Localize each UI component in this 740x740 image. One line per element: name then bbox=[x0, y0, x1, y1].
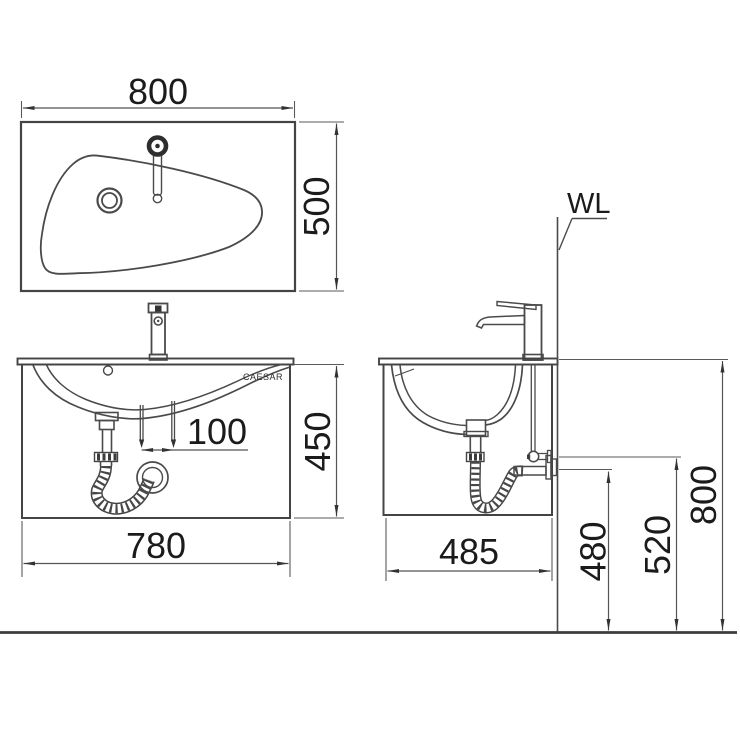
dim-side-depth-label: 485 bbox=[439, 531, 499, 572]
faucet-spout-side bbox=[477, 316, 525, 329]
front-view-outline bbox=[22, 365, 290, 519]
bowl-inner-right bbox=[486, 365, 516, 421]
dim-front-width-label: 780 bbox=[126, 525, 186, 566]
nut-band bbox=[114, 454, 117, 461]
supply-tube-side bbox=[531, 365, 535, 452]
technical-drawing-sheet: 800 500 CAESAR bbox=[0, 0, 740, 740]
washbasin-installation-diagram: 800 500 CAESAR bbox=[0, 0, 740, 740]
faucet-body-front bbox=[152, 313, 166, 355]
overflow-hole-icon bbox=[104, 366, 113, 375]
nut-band bbox=[97, 454, 100, 461]
pipe-tip-arrow bbox=[171, 440, 176, 449]
supply-pipe-left bbox=[140, 405, 143, 442]
valve-stem bbox=[527, 455, 530, 460]
drain-tailpiece-side bbox=[470, 437, 480, 453]
pipe-tip-arrow bbox=[139, 440, 144, 449]
wall-label-leader bbox=[559, 219, 572, 251]
faucet-body-side bbox=[525, 305, 542, 360]
dim-outlet-height-label: 480 bbox=[573, 521, 614, 581]
bowl-outer-right bbox=[486, 365, 523, 425]
nut-band bbox=[479, 454, 482, 461]
wall-line-label: WL bbox=[567, 188, 611, 220]
drain-nut-front bbox=[95, 453, 118, 462]
nut-band bbox=[469, 454, 472, 461]
drain-nut-side bbox=[467, 453, 485, 462]
nut-band bbox=[103, 454, 106, 461]
drain-hole-inner-icon bbox=[102, 193, 117, 208]
drain-tailpiece-front bbox=[103, 430, 112, 453]
flexible-hose-side bbox=[475, 462, 523, 508]
faucet-slot-icon bbox=[154, 152, 162, 195]
section-hatch-mark bbox=[395, 369, 414, 376]
valve-wall-plate bbox=[548, 451, 552, 463]
hose-coil-outer bbox=[137, 462, 168, 493]
side-view: WL 480 520 800 485 bbox=[379, 188, 728, 632]
dim-rim-height-label: 800 bbox=[683, 465, 724, 525]
faucet-hole-center-icon bbox=[155, 144, 160, 149]
drain-flange-step-front bbox=[100, 421, 115, 430]
dim-front-height-label: 450 bbox=[297, 411, 338, 471]
nut-band bbox=[108, 454, 111, 461]
dim-top-width-label: 800 bbox=[128, 71, 188, 112]
dim-valve-height-label: 520 bbox=[637, 515, 678, 575]
faucet-ring-dot bbox=[157, 320, 159, 322]
dim-hole-spacing-label: 100 bbox=[187, 411, 247, 452]
top-view: 800 500 bbox=[21, 71, 344, 291]
bowl-inner-left bbox=[400, 365, 467, 426]
supply-pipe-right bbox=[172, 401, 175, 442]
brand-label: CAESAR bbox=[243, 372, 283, 382]
nut-band bbox=[474, 454, 477, 461]
front-view: CAESAR 100 450 bbox=[18, 304, 345, 578]
drain-boss-side bbox=[467, 420, 486, 436]
dim-top-depth-label: 500 bbox=[296, 176, 337, 236]
faucet-cap-detail bbox=[155, 306, 162, 312]
side-view-outline bbox=[384, 365, 553, 516]
basin-rim-outline bbox=[41, 155, 262, 273]
